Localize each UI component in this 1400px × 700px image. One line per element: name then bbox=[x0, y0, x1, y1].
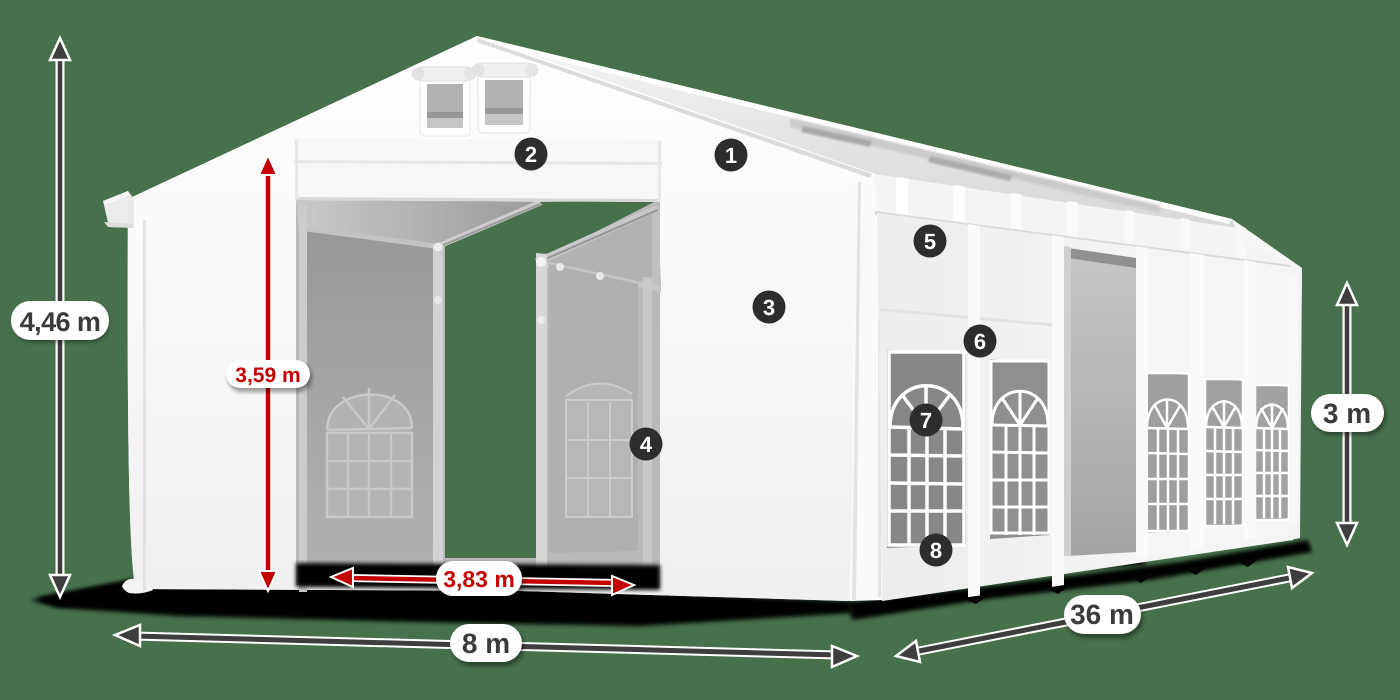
svg-text:3 m: 3 m bbox=[1323, 398, 1371, 429]
svg-text:6: 6 bbox=[974, 329, 986, 354]
svg-text:8 m: 8 m bbox=[462, 628, 510, 659]
svg-text:4: 4 bbox=[640, 432, 653, 457]
svg-text:5: 5 bbox=[924, 229, 936, 254]
svg-text:36 m: 36 m bbox=[1070, 599, 1134, 630]
svg-text:3: 3 bbox=[763, 295, 775, 320]
svg-text:7: 7 bbox=[920, 408, 932, 433]
svg-text:3,83 m: 3,83 m bbox=[443, 566, 515, 592]
svg-text:2: 2 bbox=[525, 142, 537, 167]
svg-text:8: 8 bbox=[930, 538, 942, 563]
svg-text:4,46 m: 4,46 m bbox=[20, 307, 100, 337]
svg-text:3,59 m: 3,59 m bbox=[235, 364, 300, 387]
svg-text:1: 1 bbox=[725, 143, 737, 168]
